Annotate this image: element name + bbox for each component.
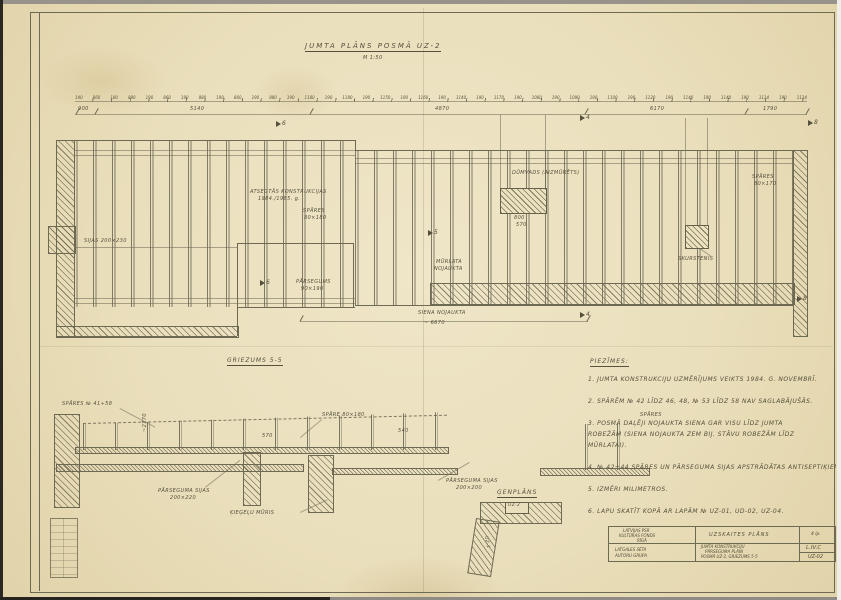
- chain-ticks: [75, 98, 807, 102]
- segment-dim-line: [75, 114, 807, 115]
- label-dim-6670: ~ 6670: [424, 320, 445, 326]
- list-item: MŪRLATAI).: [588, 440, 836, 451]
- titleblock-org-3: RĪGĀ: [637, 538, 647, 543]
- label-section-2770: ~2770: [142, 413, 148, 432]
- list-item: 4. № 42÷44 SPĀRES UN PĀRSEGUMA SIJAS APS…: [588, 462, 836, 473]
- bottom-block-hatch: [56, 326, 239, 338]
- roof-edge-hatch-band: [430, 283, 795, 305]
- chimney-2: [685, 225, 709, 249]
- label-sijas-left: PĀRSEGUMA SIJAS: [158, 488, 210, 494]
- section-marker-6-bottom: 6: [260, 279, 270, 286]
- plan-recess-notch: [237, 243, 354, 308]
- section-marker-4-bottom: 4: [580, 311, 590, 318]
- section-marker-4-top: 4: [580, 114, 590, 121]
- plan-top-right-line: [355, 150, 806, 151]
- section-marker-5-mid: 5: [428, 229, 438, 236]
- marker-number: 6: [282, 120, 286, 127]
- signature-stamp: [50, 518, 78, 578]
- label-section-540: 540: [398, 428, 409, 434]
- marker-number: 8: [814, 119, 818, 126]
- scale-label: M 1:50: [363, 55, 383, 61]
- marker-flag-icon: [580, 312, 585, 318]
- genplans-title: ĢENPLĀNS: [497, 489, 537, 498]
- list-item: 6. LAPU SKATĪT KOPĀ AR LAPĀM № UZ-01, UD…: [588, 506, 836, 517]
- label-sijas-right: PĀRSEGUMA SIJAS: [446, 478, 498, 484]
- genplans-uz2-label: UZ-2: [508, 503, 520, 508]
- segment-dim-1790: 1790: [763, 106, 777, 112]
- label-sijas: SIJAS 200×230: [84, 238, 127, 244]
- segment-dim-900: 900: [78, 106, 89, 112]
- marker-number: 6: [266, 279, 270, 286]
- notes-title: PIEZĪMES:: [590, 358, 629, 367]
- murlata-line: [355, 158, 793, 159]
- section-marker-8-right-top: 8: [808, 119, 818, 126]
- titleblock-vline-1: [695, 527, 696, 561]
- murlata-line: [74, 150, 355, 151]
- label-dumvads: DŪMVADS (AIZMŪRĒTS): [512, 170, 580, 176]
- masonry-pier-left: [54, 414, 80, 508]
- plan-top-left-line: [56, 140, 355, 141]
- marker-number: 5: [434, 229, 438, 236]
- murlata-line: [74, 247, 237, 248]
- masonry-pier-mid: [243, 452, 261, 506]
- list-item: [588, 473, 836, 484]
- marker-flag-icon: [808, 120, 813, 126]
- list-item: ROBEŽĀM (SIENA NOJAUKTA ZEM BIJ. STĀVU R…: [588, 429, 836, 440]
- label-spares-1: SPĀRES: [303, 208, 325, 214]
- segment-dim-6170: 6170: [650, 106, 664, 112]
- titleblock-doc-type: UZSKAITES PLĀNS: [709, 532, 770, 538]
- label-skurstenis: SKURSTENIS: [678, 256, 713, 262]
- label-atsegums: ATSEGTĀS KONSTRUKCIJAS: [250, 189, 327, 195]
- marker-flag-icon: [428, 230, 433, 236]
- list-item: [588, 451, 836, 462]
- marker-number: 4: [586, 311, 590, 318]
- label-section-spare-mid: SPĀRE 80×180: [322, 412, 365, 418]
- label-section-spares-left: SPĀRES № 41÷58: [62, 401, 112, 407]
- plan-bottom-right-line: [355, 305, 793, 306]
- scan-edge-right: [837, 0, 841, 600]
- label-parsegums-dim: 90×190: [301, 286, 324, 292]
- list-item: [588, 385, 836, 396]
- label-murlata: MŪRLATA: [436, 259, 462, 265]
- murlata-line: [355, 163, 793, 164]
- section-beam-c: [332, 468, 458, 475]
- label-kiegelu-muris: ĶIEĢEĻU MŪRIS: [230, 510, 274, 516]
- label-spares-1-dim: 80×180: [304, 215, 327, 221]
- label-chimney1-w: 800: [514, 215, 525, 221]
- marker-number: 4: [586, 114, 590, 121]
- marker-flag-icon: [797, 296, 802, 302]
- titleblock-vline-2: [799, 527, 800, 561]
- plan-step-line: [355, 140, 356, 150]
- label-murlata-state: NOJAUKTA: [434, 266, 463, 272]
- label-sijas-left-dim: 200×220: [170, 495, 196, 501]
- titleblock-code-bottom: UZ-02: [808, 554, 823, 560]
- titleblock-title-3: POSMĀ UZ-2, GRIEZUMS 5-5: [701, 554, 758, 559]
- label-chimney1-h: 570: [516, 222, 527, 228]
- masonry-pier-right: [308, 455, 334, 513]
- list-item: 1. JUMTA KONSTRUKCIJU UZMĒRĪJUMS VEIKTS …: [588, 374, 836, 385]
- segment-dim-4870: 4870: [435, 106, 449, 112]
- segment-dim-5140: 5140: [190, 106, 204, 112]
- titleblock-code-top: L.IV.C: [806, 545, 821, 551]
- marker-flag-icon: [260, 280, 265, 286]
- list-item: 2. SPĀRĒM № 42 LĪDZ 46, 48, № 53 LĪDZ 58…: [588, 396, 836, 407]
- label-spares-2-dim: 80×170: [754, 181, 777, 187]
- list-item: 5. IZMĒRI MILIMETROS.: [588, 484, 836, 495]
- label-parsegums: PĀRSEGUMS: [296, 279, 331, 285]
- drawing-title: JUMTA PLĀNS POSMĀ UZ-2: [305, 42, 441, 52]
- scanned-drawing-sheet: JUMTA PLĀNS POSMĀ UZ-2 M 1:50 1408601908…: [0, 0, 841, 600]
- label-section-570: 570: [262, 433, 273, 439]
- label-spares-2: SPĀRES: [752, 174, 774, 180]
- wall-hatch-right: [793, 150, 808, 337]
- list-item: [588, 495, 836, 506]
- section-title: GRIEZUMS 5-5: [227, 357, 283, 366]
- titleblock-object-1: LATGALES SĒTA: [615, 547, 646, 552]
- label-atsegums-date: 1984./1985. g.: [258, 196, 300, 202]
- title-block: LATVIJAS PSR KULTŪRAS FONDS RĪGĀ UZSKAIT…: [608, 526, 836, 562]
- murlata-line: [74, 155, 355, 156]
- list-item: [588, 407, 836, 418]
- chimney-1: [500, 188, 547, 214]
- marker-flag-icon: [580, 115, 585, 121]
- frame-left-inner-line: [39, 12, 40, 591]
- section-beam-a: [75, 447, 449, 454]
- marker-flag-icon: [276, 121, 281, 127]
- wall-pier-left: [48, 226, 76, 254]
- marker-number: 8: [803, 295, 807, 302]
- notes-list: 1. JUMTA KONSTRUKCIJU UZMĒRĪJUMS VEIKTS …: [588, 374, 836, 517]
- section-marker-6-top: 6: [276, 120, 286, 127]
- section-marker-8-right-bottom: 8: [797, 295, 807, 302]
- section-beam-b: [56, 464, 304, 472]
- titleblock-sheet-count: 4 lp.: [811, 532, 821, 537]
- titleblock-object-2: AUTORU GRUPA: [615, 553, 647, 558]
- list-item: 3. POSMĀ DAĻĒJI NOJAUKTA SIENA GAR VISU …: [588, 418, 836, 429]
- label-siena-nojaukta: SIENA NOJAUKTA: [418, 310, 466, 316]
- label-sijas-right-dim: 200×200: [456, 485, 482, 491]
